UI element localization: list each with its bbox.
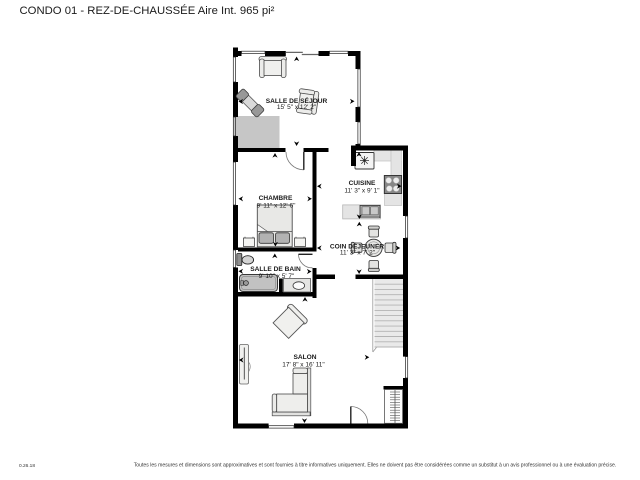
svg-text:SALON: SALON bbox=[293, 354, 316, 361]
svg-text:11' 3" x 7' 2": 11' 3" x 7' 2" bbox=[340, 250, 376, 257]
svg-text:Toutes les mesures et dimensio: Toutes les mesures et dimensions sont ap… bbox=[134, 463, 616, 469]
svg-text:CONDO 01 - REZ-DE-CHAUSSÉE Air: CONDO 01 - REZ-DE-CHAUSSÉE Aire Int. 965… bbox=[20, 4, 275, 17]
svg-text:CUISINE: CUISINE bbox=[349, 180, 376, 187]
svg-text:0.26.18: 0.26.18 bbox=[19, 463, 35, 469]
svg-text:17' 8" x 16' 11": 17' 8" x 16' 11" bbox=[282, 362, 325, 369]
svg-text:9' 11" x 12' 6": 9' 11" x 12' 6" bbox=[257, 202, 296, 209]
svg-text:SALLE DE BAIN: SALLE DE BAIN bbox=[250, 266, 301, 273]
svg-text:15' 5" x 12' 2": 15' 5" x 12' 2" bbox=[277, 104, 317, 111]
svg-text:11' 3" x 9' 1": 11' 3" x 9' 1" bbox=[344, 187, 380, 194]
svg-text:9' 10" x 5' 7": 9' 10" x 5' 7" bbox=[259, 273, 295, 280]
svg-text:CHAMBRE: CHAMBRE bbox=[259, 195, 293, 202]
